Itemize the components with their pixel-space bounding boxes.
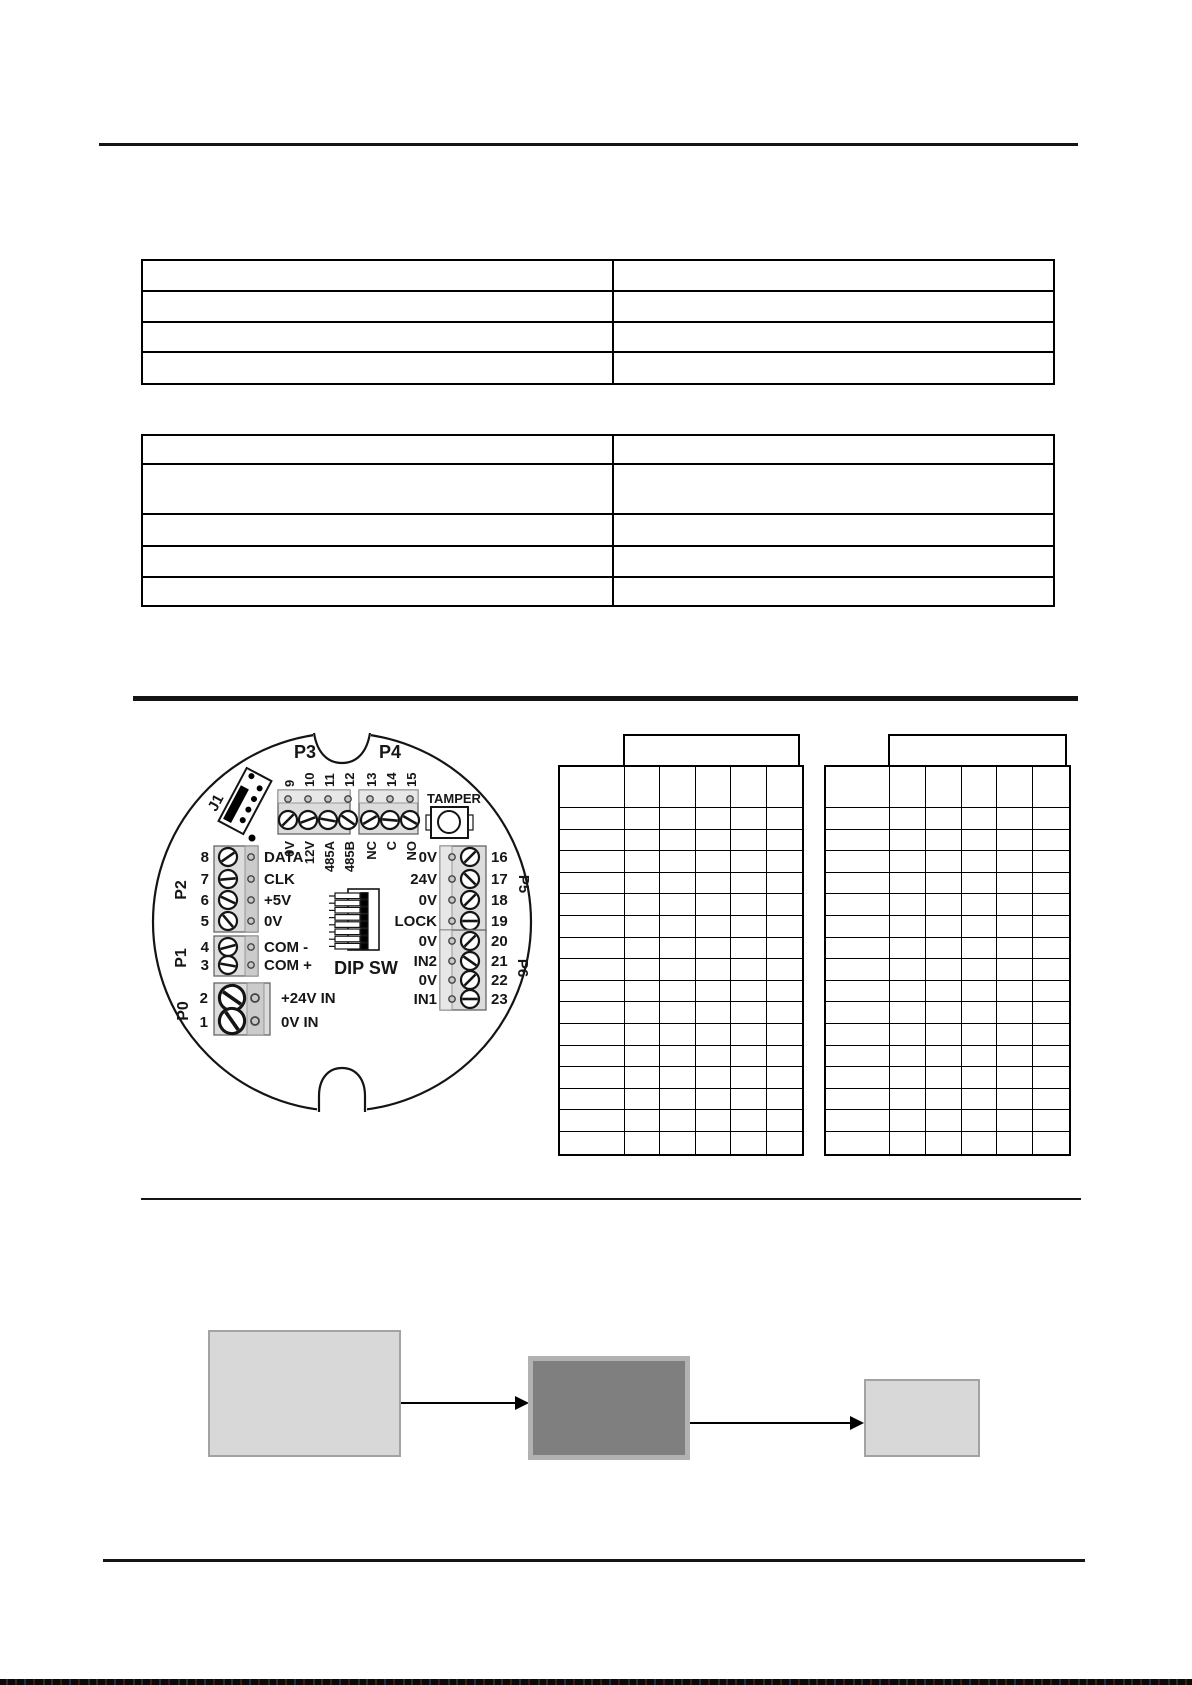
grid-cell xyxy=(962,808,998,830)
p2-pin-num: 7 xyxy=(201,871,209,888)
table-row xyxy=(142,291,1054,322)
grid-cell xyxy=(660,767,695,808)
grid-cell xyxy=(962,916,998,938)
tamper-switch xyxy=(426,807,473,838)
table-cell xyxy=(613,352,1054,384)
wire-hole-icon xyxy=(449,996,455,1002)
grid-cell xyxy=(731,894,766,916)
grid-cell xyxy=(731,1046,766,1068)
grid-cell xyxy=(890,1110,926,1132)
table-cell xyxy=(613,464,1054,514)
grid-cell xyxy=(997,851,1033,873)
grid-cell xyxy=(962,1089,998,1111)
flow-arrow-1-head xyxy=(515,1396,529,1410)
table-cell xyxy=(142,435,613,464)
grid-cell xyxy=(926,1110,962,1132)
table-cell xyxy=(142,577,613,606)
screw-icon xyxy=(218,911,238,931)
wire-hole-icon xyxy=(345,796,351,802)
grid-cell xyxy=(767,938,802,960)
grid-cell xyxy=(625,767,660,808)
grid-cell xyxy=(767,1132,802,1154)
p2-pin-num: 6 xyxy=(201,892,209,909)
p4-pin-num: 13 xyxy=(364,773,379,787)
wire-hole-icon xyxy=(248,876,254,882)
wire-hole-icon xyxy=(449,977,455,983)
p6-pin-label: IN2 xyxy=(414,953,437,970)
grid-cell xyxy=(625,938,660,960)
dip-switch xyxy=(329,889,379,950)
grid-cell xyxy=(767,894,802,916)
grid-cell xyxy=(826,1089,890,1111)
grid-cell xyxy=(1033,808,1069,830)
grid-cell xyxy=(560,1067,625,1089)
p3-pin-num: 11 xyxy=(322,773,337,787)
grid-cell xyxy=(560,1132,625,1154)
grid-cell xyxy=(926,851,962,873)
grid-cell xyxy=(560,1002,625,1024)
wire-hole-icon xyxy=(305,796,311,802)
grid-cell xyxy=(660,873,695,895)
grid-cell xyxy=(625,1024,660,1046)
grid-cell xyxy=(1033,1002,1069,1024)
screw-icon xyxy=(461,891,479,909)
p0-pin-label: 0V IN xyxy=(281,1014,319,1031)
wire-hole-icon xyxy=(285,796,291,802)
p5-terminal-block xyxy=(440,846,486,934)
wire-hole-icon xyxy=(248,962,254,968)
grid-cell xyxy=(767,767,802,808)
table-row xyxy=(142,435,1054,464)
grid-cell xyxy=(1033,1046,1069,1068)
grid-cell xyxy=(890,981,926,1003)
grid-cell xyxy=(660,830,695,852)
grid-cell xyxy=(890,959,926,981)
grid-cell xyxy=(826,981,890,1003)
grid-cell xyxy=(826,916,890,938)
p3-terminal-block xyxy=(278,790,358,834)
grid-cell xyxy=(890,767,926,808)
p5-label: P5 xyxy=(515,875,532,893)
screw-icon xyxy=(461,848,479,866)
grid-cell xyxy=(1033,894,1069,916)
grid-cell xyxy=(890,938,926,960)
grid-cell xyxy=(660,938,695,960)
flow-arrow-1-line xyxy=(401,1402,516,1404)
table-cell xyxy=(142,352,613,384)
table-cell xyxy=(613,435,1054,464)
grid-cell xyxy=(1033,1089,1069,1111)
p5-pin-num: 17 xyxy=(491,871,508,888)
wire-hole-icon xyxy=(325,796,331,802)
grid-cell xyxy=(767,1046,802,1068)
grid-cell xyxy=(997,830,1033,852)
grid-cell xyxy=(826,1067,890,1089)
grid-cell xyxy=(926,1132,962,1154)
p0-pin-label: +24V IN xyxy=(281,990,336,1007)
dip-sw-label: DIP SW xyxy=(334,958,398,978)
pcb-diagram: J1 P3 P4 9 10 11 12 13 14 15 xyxy=(140,710,550,1125)
grid-cell xyxy=(997,1110,1033,1132)
wire-hole-icon xyxy=(367,796,373,802)
wire-hole-icon xyxy=(449,918,455,924)
grid-cell xyxy=(997,959,1033,981)
grid-cell xyxy=(660,981,695,1003)
grid-cell xyxy=(1033,916,1069,938)
p6-label: P6 xyxy=(514,959,531,977)
grid-cell xyxy=(890,830,926,852)
grid-cell xyxy=(767,873,802,895)
table-row xyxy=(142,352,1054,384)
grid-cell xyxy=(625,808,660,830)
wire-hole-icon xyxy=(387,796,393,802)
grid-cell xyxy=(560,938,625,960)
wire-hole-icon xyxy=(449,876,455,882)
grid-cell xyxy=(660,1046,695,1068)
grid-cell xyxy=(731,1067,766,1089)
grid-cell xyxy=(560,851,625,873)
wire-hole-icon xyxy=(251,1017,259,1025)
grid-cell xyxy=(560,981,625,1003)
grid-cell xyxy=(696,916,731,938)
grid-cell xyxy=(826,767,890,808)
p0-pin-num: 2 xyxy=(200,990,208,1007)
grid-cell xyxy=(731,767,766,808)
grid-cell xyxy=(926,830,962,852)
grid-cell xyxy=(962,1046,998,1068)
grid-cell xyxy=(625,851,660,873)
grid-cell xyxy=(731,1089,766,1111)
grid-cell xyxy=(696,1067,731,1089)
wire-hole-icon xyxy=(248,944,254,950)
wire-hole-icon xyxy=(449,938,455,944)
p5-pin-num: 16 xyxy=(491,849,508,866)
p5-pin-label: 24V xyxy=(410,871,437,888)
p4-pin-label: NC xyxy=(364,840,379,859)
grid-cell xyxy=(997,1046,1033,1068)
grid-cell xyxy=(767,1002,802,1024)
grid-cell xyxy=(560,1024,625,1046)
p5-pin-label: 0V xyxy=(419,892,437,909)
grid-cell xyxy=(696,959,731,981)
grid-cell xyxy=(660,1132,695,1154)
header-rule xyxy=(99,143,1078,146)
grid2-header xyxy=(888,734,1067,767)
table-cell xyxy=(142,291,613,322)
grid-cell xyxy=(826,1132,890,1154)
grid-cell xyxy=(926,938,962,960)
grid-cell xyxy=(767,1110,802,1132)
grid-cell xyxy=(660,1024,695,1046)
grid-cell xyxy=(696,873,731,895)
grid-cell xyxy=(926,767,962,808)
p2-pin-label: 0V xyxy=(264,913,282,930)
grid-cell xyxy=(962,873,998,895)
grid-cell xyxy=(731,830,766,852)
grid-cell xyxy=(826,1046,890,1068)
terminal-grid-1 xyxy=(558,765,804,1156)
table-row xyxy=(142,546,1054,577)
grid-cell xyxy=(962,938,998,960)
table-cell xyxy=(142,260,613,291)
grid-cell xyxy=(826,851,890,873)
wire-hole-icon xyxy=(449,897,455,903)
grid-cell xyxy=(696,830,731,852)
grid-cell xyxy=(962,981,998,1003)
table-row xyxy=(142,514,1054,546)
p6-terminal-block xyxy=(440,930,486,1012)
flow-box-1 xyxy=(208,1330,401,1457)
grid-cell xyxy=(926,959,962,981)
grid-cell xyxy=(997,894,1033,916)
p2-pin-num: 8 xyxy=(201,849,209,866)
grid-cell xyxy=(962,959,998,981)
p6-pin-num: 20 xyxy=(491,933,508,950)
grid-cell xyxy=(660,916,695,938)
grid-cell xyxy=(731,873,766,895)
screw-icon xyxy=(461,971,479,989)
p6-pin-num: 22 xyxy=(491,972,508,989)
grid-cell xyxy=(926,1002,962,1024)
table-cell xyxy=(613,546,1054,577)
grid-cell xyxy=(660,1002,695,1024)
grid-cell xyxy=(826,959,890,981)
grid-cell xyxy=(926,916,962,938)
grid-cell xyxy=(1033,1024,1069,1046)
grid-cell xyxy=(731,851,766,873)
grid-cell xyxy=(1033,1110,1069,1132)
p1-pin-label: COM - xyxy=(264,939,308,956)
p2-pin-num: 5 xyxy=(201,913,209,930)
grid-cell xyxy=(890,851,926,873)
grid-cell xyxy=(625,916,660,938)
table-cell xyxy=(142,464,613,514)
grid-cell xyxy=(625,1110,660,1132)
p1-pin-label: COM + xyxy=(264,957,312,974)
grid-cell xyxy=(1033,851,1069,873)
j1-extra-hole xyxy=(249,835,256,842)
p1-label: P1 xyxy=(173,948,190,968)
grid-cell xyxy=(926,1046,962,1068)
grid-cell xyxy=(560,808,625,830)
p0-pin-num: 1 xyxy=(200,1014,208,1031)
grid-cell xyxy=(962,894,998,916)
grid-cell xyxy=(696,938,731,960)
grid-cell xyxy=(926,873,962,895)
grid-cell xyxy=(560,894,625,916)
grid-cell xyxy=(997,1132,1033,1154)
grid-cell xyxy=(1033,1067,1069,1089)
grid-cell xyxy=(660,1067,695,1089)
spec-table-1 xyxy=(141,259,1055,385)
grid-cell xyxy=(926,808,962,830)
table-row xyxy=(142,464,1054,514)
p3-pin-label: 485A xyxy=(322,840,337,872)
grid-cell xyxy=(997,1067,1033,1089)
spec-table-2 xyxy=(141,434,1055,607)
grid-cell xyxy=(962,1132,998,1154)
grid-cell xyxy=(625,1132,660,1154)
grid-cell xyxy=(997,938,1033,960)
p2-pin-label: DATA xyxy=(264,849,304,866)
grid-cell xyxy=(560,959,625,981)
grid-cell xyxy=(962,767,998,808)
p4-terminal-block xyxy=(359,790,421,834)
grid-cell xyxy=(826,1002,890,1024)
grid-cell xyxy=(890,1002,926,1024)
grid-cell xyxy=(560,1046,625,1068)
grid-cell xyxy=(890,916,926,938)
grid-cell xyxy=(890,1024,926,1046)
screw-icon xyxy=(461,932,479,950)
p3-pin-num: 10 xyxy=(302,773,317,787)
grid-cell xyxy=(660,894,695,916)
grid-cell xyxy=(696,1024,731,1046)
p5-pin-label: 0V xyxy=(419,849,437,866)
section-rule-mid xyxy=(141,1198,1081,1200)
grid-cell xyxy=(767,808,802,830)
table-cell xyxy=(613,322,1054,352)
grid-cell xyxy=(560,1110,625,1132)
grid-cell xyxy=(997,808,1033,830)
grid-cell xyxy=(731,1002,766,1024)
grid-cell xyxy=(625,894,660,916)
grid-cell xyxy=(625,981,660,1003)
p0-terminal-block xyxy=(214,983,270,1036)
grid-cell xyxy=(696,894,731,916)
grid-cell xyxy=(890,1067,926,1089)
flow-box-2 xyxy=(528,1356,690,1460)
p3-pin-num: 12 xyxy=(342,773,357,787)
grid-cell xyxy=(625,959,660,981)
p3-label: P3 xyxy=(294,742,316,762)
grid-cell xyxy=(696,767,731,808)
grid-cell xyxy=(731,1110,766,1132)
terminal-grid-2 xyxy=(824,765,1071,1156)
footer-rule xyxy=(103,1559,1085,1562)
grid-cell xyxy=(962,1110,998,1132)
flow-arrow-2-head xyxy=(850,1416,864,1430)
grid-cell xyxy=(890,1132,926,1154)
grid-cell xyxy=(696,808,731,830)
wire-hole-icon xyxy=(449,854,455,860)
grid-cell xyxy=(767,916,802,938)
grid-cell xyxy=(625,1002,660,1024)
document-page: J1 P3 P4 9 10 11 12 13 14 15 xyxy=(0,0,1192,1685)
grid-cell xyxy=(625,1046,660,1068)
grid-cell xyxy=(625,873,660,895)
grid-cell xyxy=(997,1002,1033,1024)
grid-cell xyxy=(826,938,890,960)
wire-hole-icon xyxy=(449,958,455,964)
grid-cell xyxy=(660,1110,695,1132)
grid-cell xyxy=(625,1089,660,1111)
table-cell xyxy=(613,577,1054,606)
grid-cell xyxy=(926,1024,962,1046)
p2-label: P2 xyxy=(173,880,190,900)
grid-cell xyxy=(731,981,766,1003)
grid-cell xyxy=(731,1024,766,1046)
grid-cell xyxy=(890,1089,926,1111)
table-cell xyxy=(613,514,1054,546)
grid-cell xyxy=(731,808,766,830)
grid-cell xyxy=(767,959,802,981)
grid-cell xyxy=(997,916,1033,938)
grid-cell xyxy=(962,1067,998,1089)
table-cell xyxy=(142,546,613,577)
p6-pin-label: 0V xyxy=(419,933,437,950)
p3-pin-label: 485B xyxy=(342,841,357,872)
grid-cell xyxy=(826,1110,890,1132)
grid-cell xyxy=(767,830,802,852)
grid-cell xyxy=(560,873,625,895)
grid-cell xyxy=(560,1089,625,1111)
grid-cell xyxy=(826,894,890,916)
grid-cell xyxy=(890,1046,926,1068)
flow-arrow-2-line xyxy=(690,1422,850,1424)
table-row xyxy=(142,577,1054,606)
grid-cell xyxy=(696,1110,731,1132)
screw-icon xyxy=(279,811,297,829)
scan-noise-strip xyxy=(0,1679,1192,1685)
grid-cell xyxy=(926,894,962,916)
grid-cell xyxy=(926,1067,962,1089)
grid-cell xyxy=(962,1024,998,1046)
grid-cell xyxy=(890,894,926,916)
grid-cell xyxy=(826,808,890,830)
grid-cell xyxy=(926,1089,962,1111)
wire-hole-icon xyxy=(248,918,254,924)
grid-cell xyxy=(1033,938,1069,960)
p1-pin-num: 3 xyxy=(201,957,209,974)
grid-cell xyxy=(890,808,926,830)
wire-hole-icon xyxy=(407,796,413,802)
grid-cell xyxy=(767,981,802,1003)
grid-cell xyxy=(731,1132,766,1154)
grid-cell xyxy=(660,959,695,981)
grid-cell xyxy=(962,830,998,852)
p5-pin-label: LOCK xyxy=(395,913,438,930)
grid-cell xyxy=(1033,767,1069,808)
grid-cell xyxy=(826,830,890,852)
grid-cell xyxy=(696,1046,731,1068)
p5-pin-num: 18 xyxy=(491,892,508,909)
p1-terminal-block xyxy=(214,935,258,978)
grid-cell xyxy=(962,1002,998,1024)
p4-label: P4 xyxy=(379,742,401,762)
p6-pin-num: 21 xyxy=(491,953,508,970)
grid-cell xyxy=(731,959,766,981)
p4-pin-num: 15 xyxy=(404,773,419,787)
p5-pin-num: 19 xyxy=(491,913,508,930)
grid-cell xyxy=(660,851,695,873)
grid-cell xyxy=(1033,830,1069,852)
grid-cell xyxy=(962,851,998,873)
grid-cell xyxy=(1033,873,1069,895)
grid-cell xyxy=(1033,981,1069,1003)
grid-cell xyxy=(560,830,625,852)
grid-cell xyxy=(767,1089,802,1111)
table-cell xyxy=(142,514,613,546)
grid-cell xyxy=(997,1089,1033,1111)
grid-cell xyxy=(731,938,766,960)
table-cell xyxy=(613,260,1054,291)
grid-cell xyxy=(826,873,890,895)
p2-pin-label: +5V xyxy=(264,892,291,909)
grid-cell xyxy=(826,1024,890,1046)
p4-pin-label: C xyxy=(384,840,399,850)
grid-cell xyxy=(625,1067,660,1089)
